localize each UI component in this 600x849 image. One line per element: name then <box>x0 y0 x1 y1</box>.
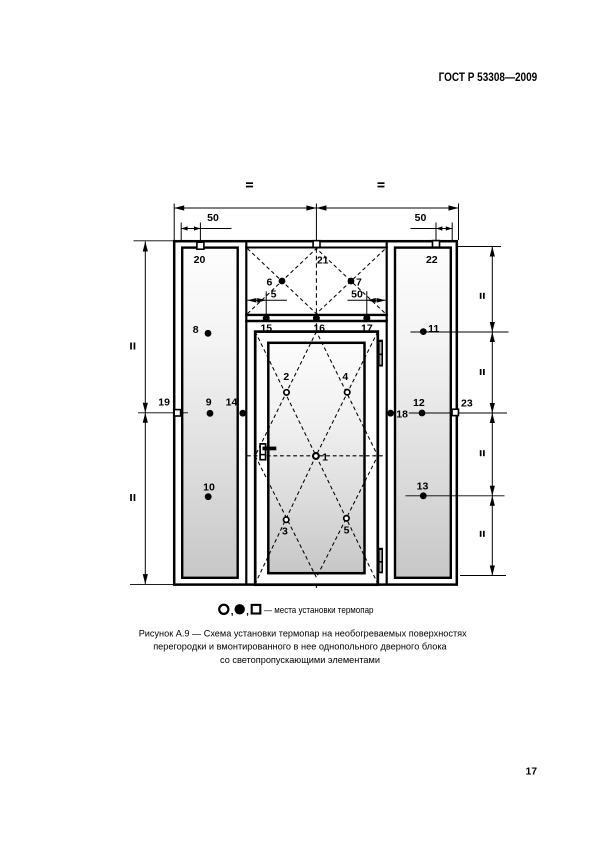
svg-text:перегородки и вмонтированного: перегородки и вмонтированного в нее одно… <box>153 642 447 653</box>
svg-text:22: 22 <box>426 254 438 266</box>
svg-text:11: 11 <box>428 323 439 335</box>
svg-text:17: 17 <box>526 767 538 778</box>
svg-text:Рисунок А.9 — Схема установки: Рисунок А.9 — Схема установки термопар н… <box>139 628 467 639</box>
svg-text:18: 18 <box>396 408 408 420</box>
svg-text:20: 20 <box>194 254 206 266</box>
svg-text:8: 8 <box>193 324 199 336</box>
svg-text:14: 14 <box>226 397 238 409</box>
svg-text:21: 21 <box>317 254 329 266</box>
svg-text:13: 13 <box>417 480 429 492</box>
svg-text:— места установки термопар: — места установки термопар <box>264 605 374 615</box>
svg-text:15: 15 <box>260 323 272 335</box>
svg-text:3: 3 <box>282 525 288 537</box>
svg-text:ГОСТ Р 53308—2009: ГОСТ Р 53308—2009 <box>439 70 538 84</box>
svg-text:50: 50 <box>415 212 427 224</box>
svg-text:12: 12 <box>413 397 425 409</box>
svg-text:5: 5 <box>271 289 277 301</box>
svg-text:50: 50 <box>351 289 363 301</box>
svg-text:,: , <box>231 607 234 618</box>
svg-text:10: 10 <box>203 482 215 494</box>
svg-text:6: 6 <box>266 277 272 289</box>
svg-text:23: 23 <box>461 398 473 410</box>
svg-text:19: 19 <box>158 396 170 408</box>
svg-text:2: 2 <box>283 371 289 383</box>
svg-text:1: 1 <box>322 451 328 463</box>
svg-text:,: , <box>246 607 249 618</box>
svg-text:со светопропускающими элемента: со светопропускающими элементами <box>220 655 380 666</box>
svg-text:16: 16 <box>313 323 325 335</box>
svg-text:17: 17 <box>361 323 373 335</box>
svg-text:5: 5 <box>344 525 350 537</box>
svg-text:9: 9 <box>206 396 212 408</box>
svg-text:4: 4 <box>342 371 348 383</box>
svg-text:50: 50 <box>207 212 219 224</box>
svg-text:7: 7 <box>356 277 362 289</box>
